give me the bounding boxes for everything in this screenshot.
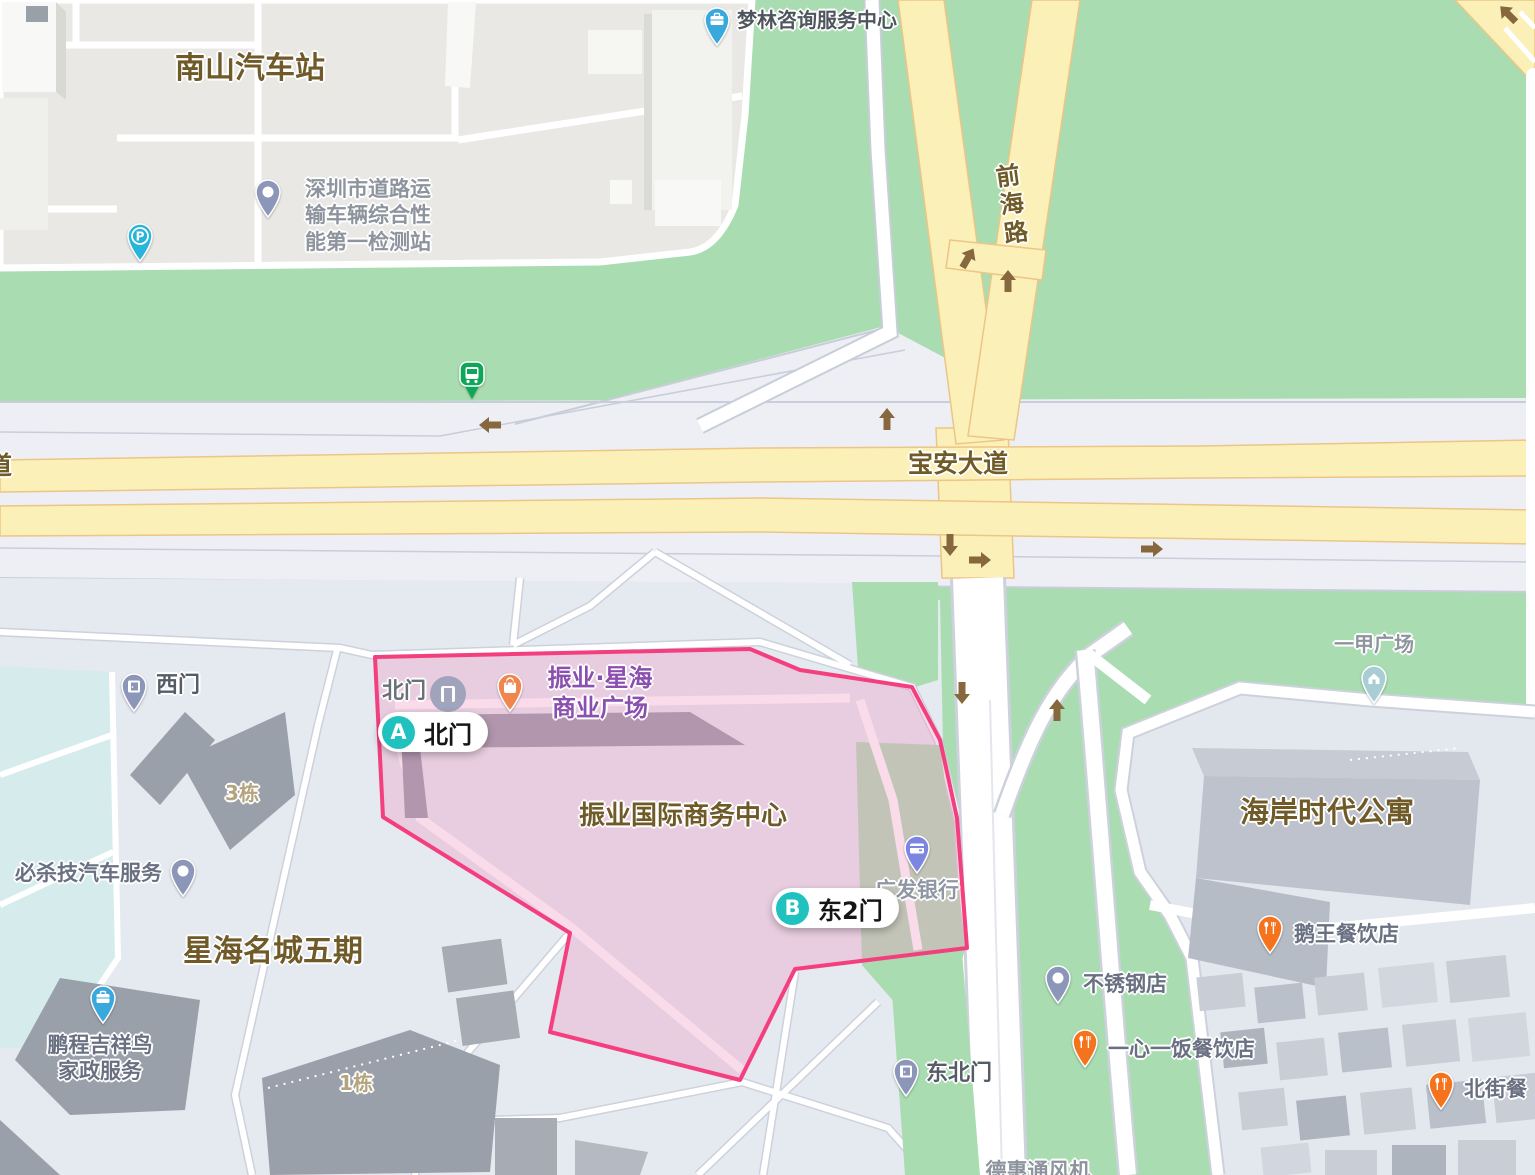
route-marker-b[interactable]: B 东2门	[772, 888, 899, 928]
restaurant-pin-icon[interactable]	[1070, 1028, 1100, 1068]
poi-label-north-gate-small[interactable]: 北门	[382, 678, 426, 706]
area-label-haian-apartment: 海岸时代公寓	[1240, 794, 1414, 830]
gate-door-icon	[430, 676, 466, 712]
route-marker-a-label: 北门	[424, 715, 472, 750]
poi-label-bishaji-auto[interactable]: 必杀技汽车服务	[15, 860, 162, 886]
briefcase-pin-icon[interactable]	[702, 6, 732, 46]
bus-stop-pin-icon[interactable]	[457, 360, 487, 400]
poi-label-west-gate[interactable]: 西门	[156, 672, 200, 700]
restaurant-pin-icon[interactable]	[1255, 914, 1285, 954]
briefcase-pin-icon[interactable]	[88, 984, 118, 1024]
poi-label-menglin[interactable]: 梦林咨询服务中心	[737, 8, 897, 33]
poi-label-zhenye-xinghai-plaza[interactable]: 振业·星海 商业广场	[547, 663, 652, 723]
area-label-building-1: 1栋	[339, 1071, 373, 1096]
basemap-layer	[0, 0, 1535, 1175]
svg-text:P: P	[136, 230, 145, 244]
poi-label-stainless-steel[interactable]: 不锈钢店	[1083, 971, 1167, 997]
restaurant-pin-icon[interactable]	[1426, 1070, 1456, 1110]
poi-label-pengcheng[interactable]: 鹏程吉祥鸟 家政服务	[48, 1032, 153, 1085]
area-label-xinghai-mingcheng: 星海名城五期	[183, 933, 363, 971]
parking-pin-icon[interactable]: P	[125, 222, 155, 262]
poi-label-northeast-gate[interactable]: 东北门	[926, 1060, 992, 1088]
place-pin-icon[interactable]	[168, 857, 198, 897]
road-label-baoan-partial: 道	[0, 450, 12, 481]
door-pin-icon[interactable]	[891, 1057, 921, 1097]
area-label-nanshan-bus-station: 南山汽车站	[175, 50, 325, 88]
route-marker-b-label: 东2门	[818, 891, 883, 926]
poi-label-yijia-plaza[interactable]: 一甲广场	[1334, 632, 1414, 657]
poi-label-inspection-station[interactable]: 深圳市道路运 输车辆综合性 能第一检测站	[305, 176, 431, 255]
area-label-dehui-partial: 德惠通风机	[986, 1158, 1091, 1175]
poi-label-beijie[interactable]: 北街餐	[1464, 1076, 1527, 1102]
shopping-bag-pin-icon[interactable]	[495, 672, 525, 712]
bank-card-pin-icon[interactable]	[902, 834, 932, 874]
place-pin-icon[interactable]	[253, 178, 283, 218]
door-pin-icon[interactable]	[119, 672, 149, 712]
poi-label-yixinyifan[interactable]: 一心一饭餐饮店	[1108, 1036, 1255, 1062]
area-label-zhenye-center: 振业国际商务中心	[579, 800, 787, 833]
route-marker-b-badge: B	[776, 892, 809, 925]
house-pin-icon[interactable]	[1359, 664, 1389, 704]
road-label-baoan: 宝安大道	[908, 448, 1008, 479]
place-pin-icon[interactable]	[1043, 964, 1073, 1004]
poi-label-ewang[interactable]: 鹅王餐饮店	[1294, 921, 1399, 947]
map-canvas[interactable]: 南山汽车站 深圳市道路运 输车辆综合性 能第一检测站 梦林咨询服务中心 前 海 …	[0, 0, 1535, 1175]
area-label-building-3: 3栋	[225, 781, 259, 806]
route-marker-a[interactable]: A 北门	[378, 712, 488, 752]
route-marker-a-badge: A	[382, 716, 415, 749]
